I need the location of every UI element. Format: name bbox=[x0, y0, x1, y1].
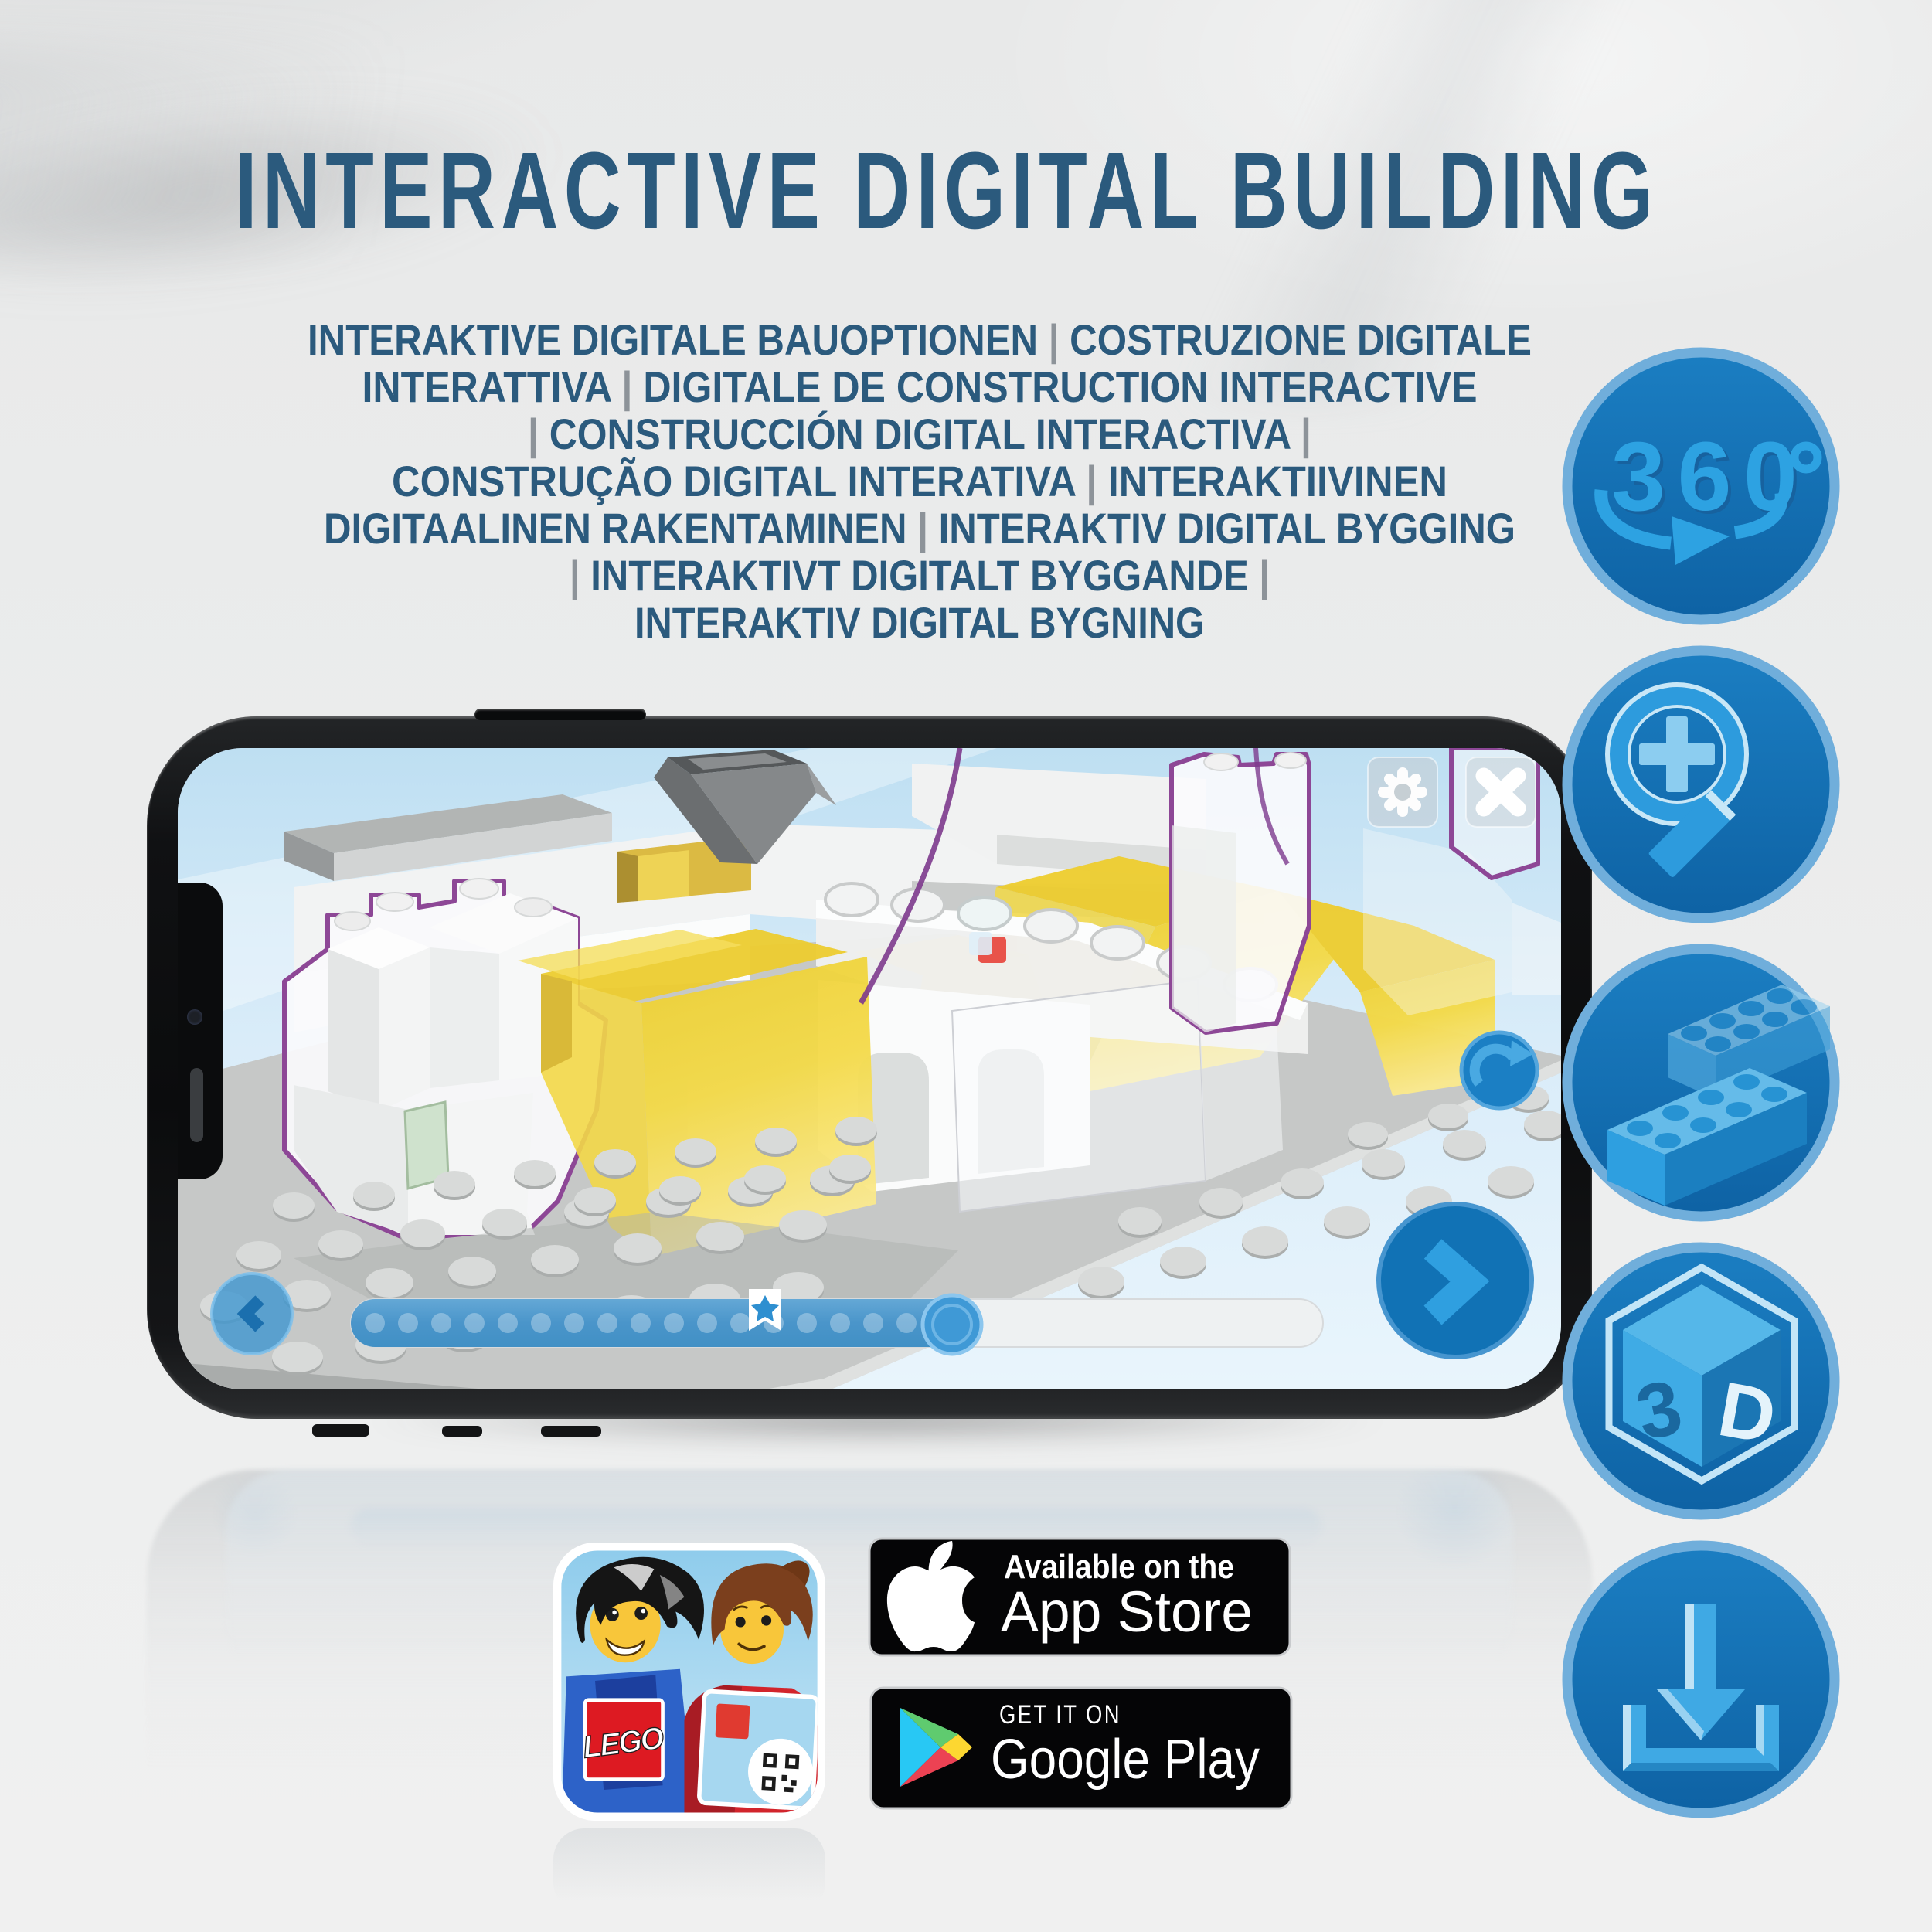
svg-text:Google Play: Google Play bbox=[991, 1729, 1260, 1791]
svg-text:INTERAKTIV DIGITAL BYGNING: INTERAKTIV DIGITAL BYGNING bbox=[634, 598, 1205, 647]
svg-text:| CONSTRUCCIÓN DIGITAL INTERAC: | CONSTRUCCIÓN DIGITAL INTERACTIVA | bbox=[528, 410, 1311, 459]
svg-text:INTERAKTIVE DIGITALE BAUOPTION: INTERAKTIVE DIGITALE BAUOPTIONEN | COSTR… bbox=[308, 315, 1532, 365]
svg-text:DIGITAALINEN RAKENTAMINEN | IN: DIGITAALINEN RAKENTAMINEN | INTERAKTIV D… bbox=[324, 504, 1515, 553]
svg-text:INTERATTIVA | DIGITALE DE CONS: INTERATTIVA | DIGITALE DE CONSTRUCTION I… bbox=[362, 362, 1478, 412]
svg-text:| INTERAKTIVT DIGITALT BYGGAND: | INTERAKTIVT DIGITALT BYGGANDE | bbox=[570, 551, 1270, 600]
svg-text:INTERACTIVE DIGITAL BUILDING: INTERACTIVE DIGITAL BUILDING bbox=[235, 129, 1658, 251]
svg-text:App Store: App Store bbox=[1001, 1580, 1253, 1644]
svg-text:CONSTRUÇÃO DIGITAL INTERATIVA: CONSTRUÇÃO DIGITAL INTERATIVA | INTERAKT… bbox=[392, 457, 1447, 506]
svg-text:GET IT ON: GET IT ON bbox=[999, 1700, 1121, 1730]
